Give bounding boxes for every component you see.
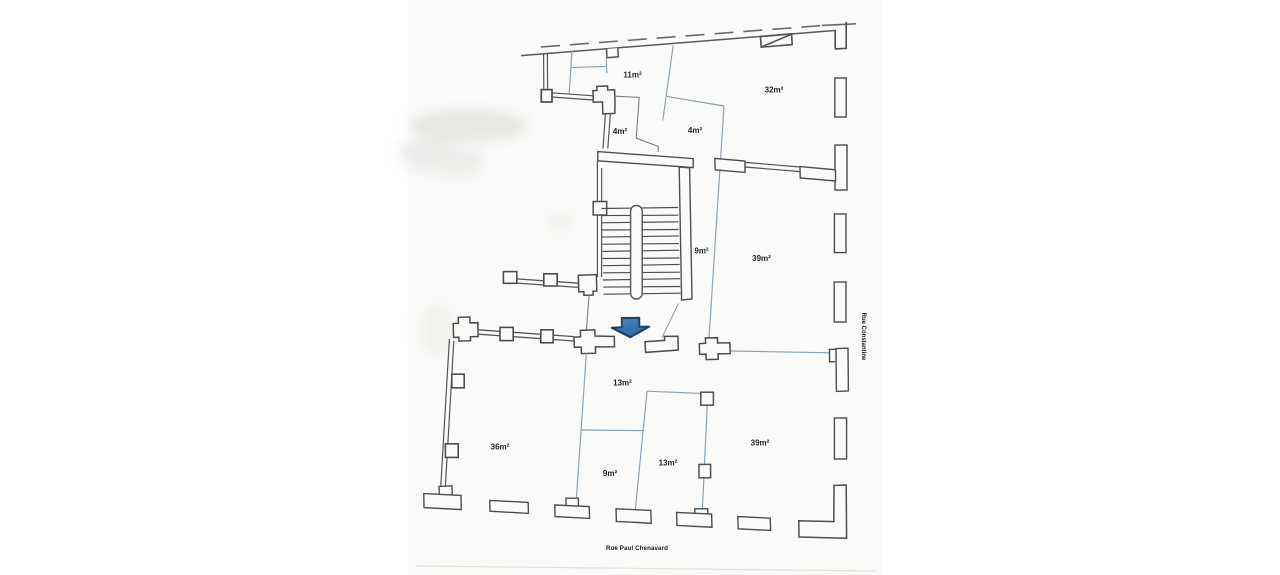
svg-text:4m²: 4m²	[613, 127, 628, 136]
svg-text:13m²: 13m²	[613, 379, 632, 388]
svg-text:11m²: 11m²	[623, 71, 642, 80]
svg-text:4m²: 4m²	[688, 126, 703, 135]
svg-text:13m²: 13m²	[659, 459, 678, 468]
svg-text:32m²: 32m²	[765, 86, 784, 95]
svg-text:39m²: 39m²	[751, 439, 770, 448]
svg-text:9m²: 9m²	[603, 469, 618, 478]
svg-text:Rue Paul Chenavard: Rue Paul Chenavard	[606, 545, 668, 552]
svg-text:36m²: 36m²	[491, 443, 510, 452]
svg-text:9m²: 9m²	[694, 247, 709, 256]
svg-text:Rue Constantine: Rue Constantine	[860, 313, 866, 361]
svg-text:39m²: 39m²	[752, 254, 771, 263]
